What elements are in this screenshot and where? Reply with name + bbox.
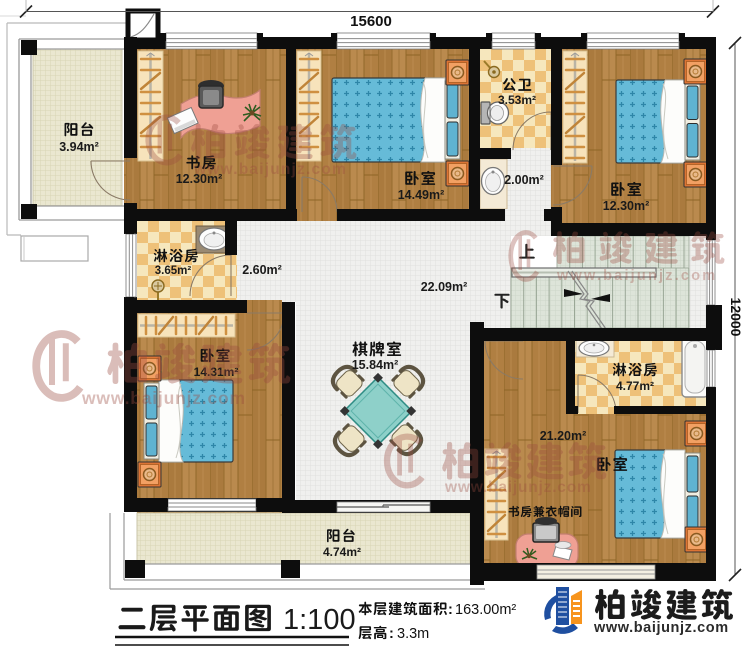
svg-text:12000: 12000 — [728, 298, 744, 337]
svg-text:3.94m²: 3.94m² — [59, 140, 99, 154]
svg-text::: : — [448, 602, 453, 618]
svg-text:15600: 15600 — [350, 13, 392, 30]
svg-text:www.baijunjz.com: www.baijunjz.com — [81, 388, 246, 408]
svg-text:21.20m²: 21.20m² — [540, 429, 587, 443]
svg-text:4.74m²: 4.74m² — [323, 545, 361, 559]
svg-text:www.baijunjz.com: www.baijunjz.com — [556, 268, 717, 284]
svg-text:2.60m²: 2.60m² — [242, 263, 282, 277]
svg-text:1:100: 1:100 — [283, 604, 356, 636]
svg-text:4.77m²: 4.77m² — [616, 379, 654, 393]
svg-text:www.baijunjz.com: www.baijunjz.com — [593, 620, 729, 636]
svg-text:163.00m²: 163.00m² — [455, 602, 516, 618]
svg-text::: : — [389, 626, 394, 642]
svg-text:22.09m²: 22.09m² — [421, 280, 468, 294]
svg-text:3.65m²: 3.65m² — [155, 265, 192, 277]
svg-text:12.30m²: 12.30m² — [603, 199, 650, 213]
svg-text:3.53m²: 3.53m² — [498, 93, 536, 107]
svg-text:www.baijunjz.com: www.baijunjz.com — [444, 479, 592, 496]
svg-text:3.3m: 3.3m — [397, 626, 429, 642]
svg-text:14.49m²: 14.49m² — [398, 188, 445, 202]
svg-text:www.baijunjz.com: www.baijunjz.com — [193, 161, 347, 178]
svg-text:15.84m²: 15.84m² — [352, 358, 399, 372]
svg-text:2.00m²: 2.00m² — [504, 173, 544, 187]
